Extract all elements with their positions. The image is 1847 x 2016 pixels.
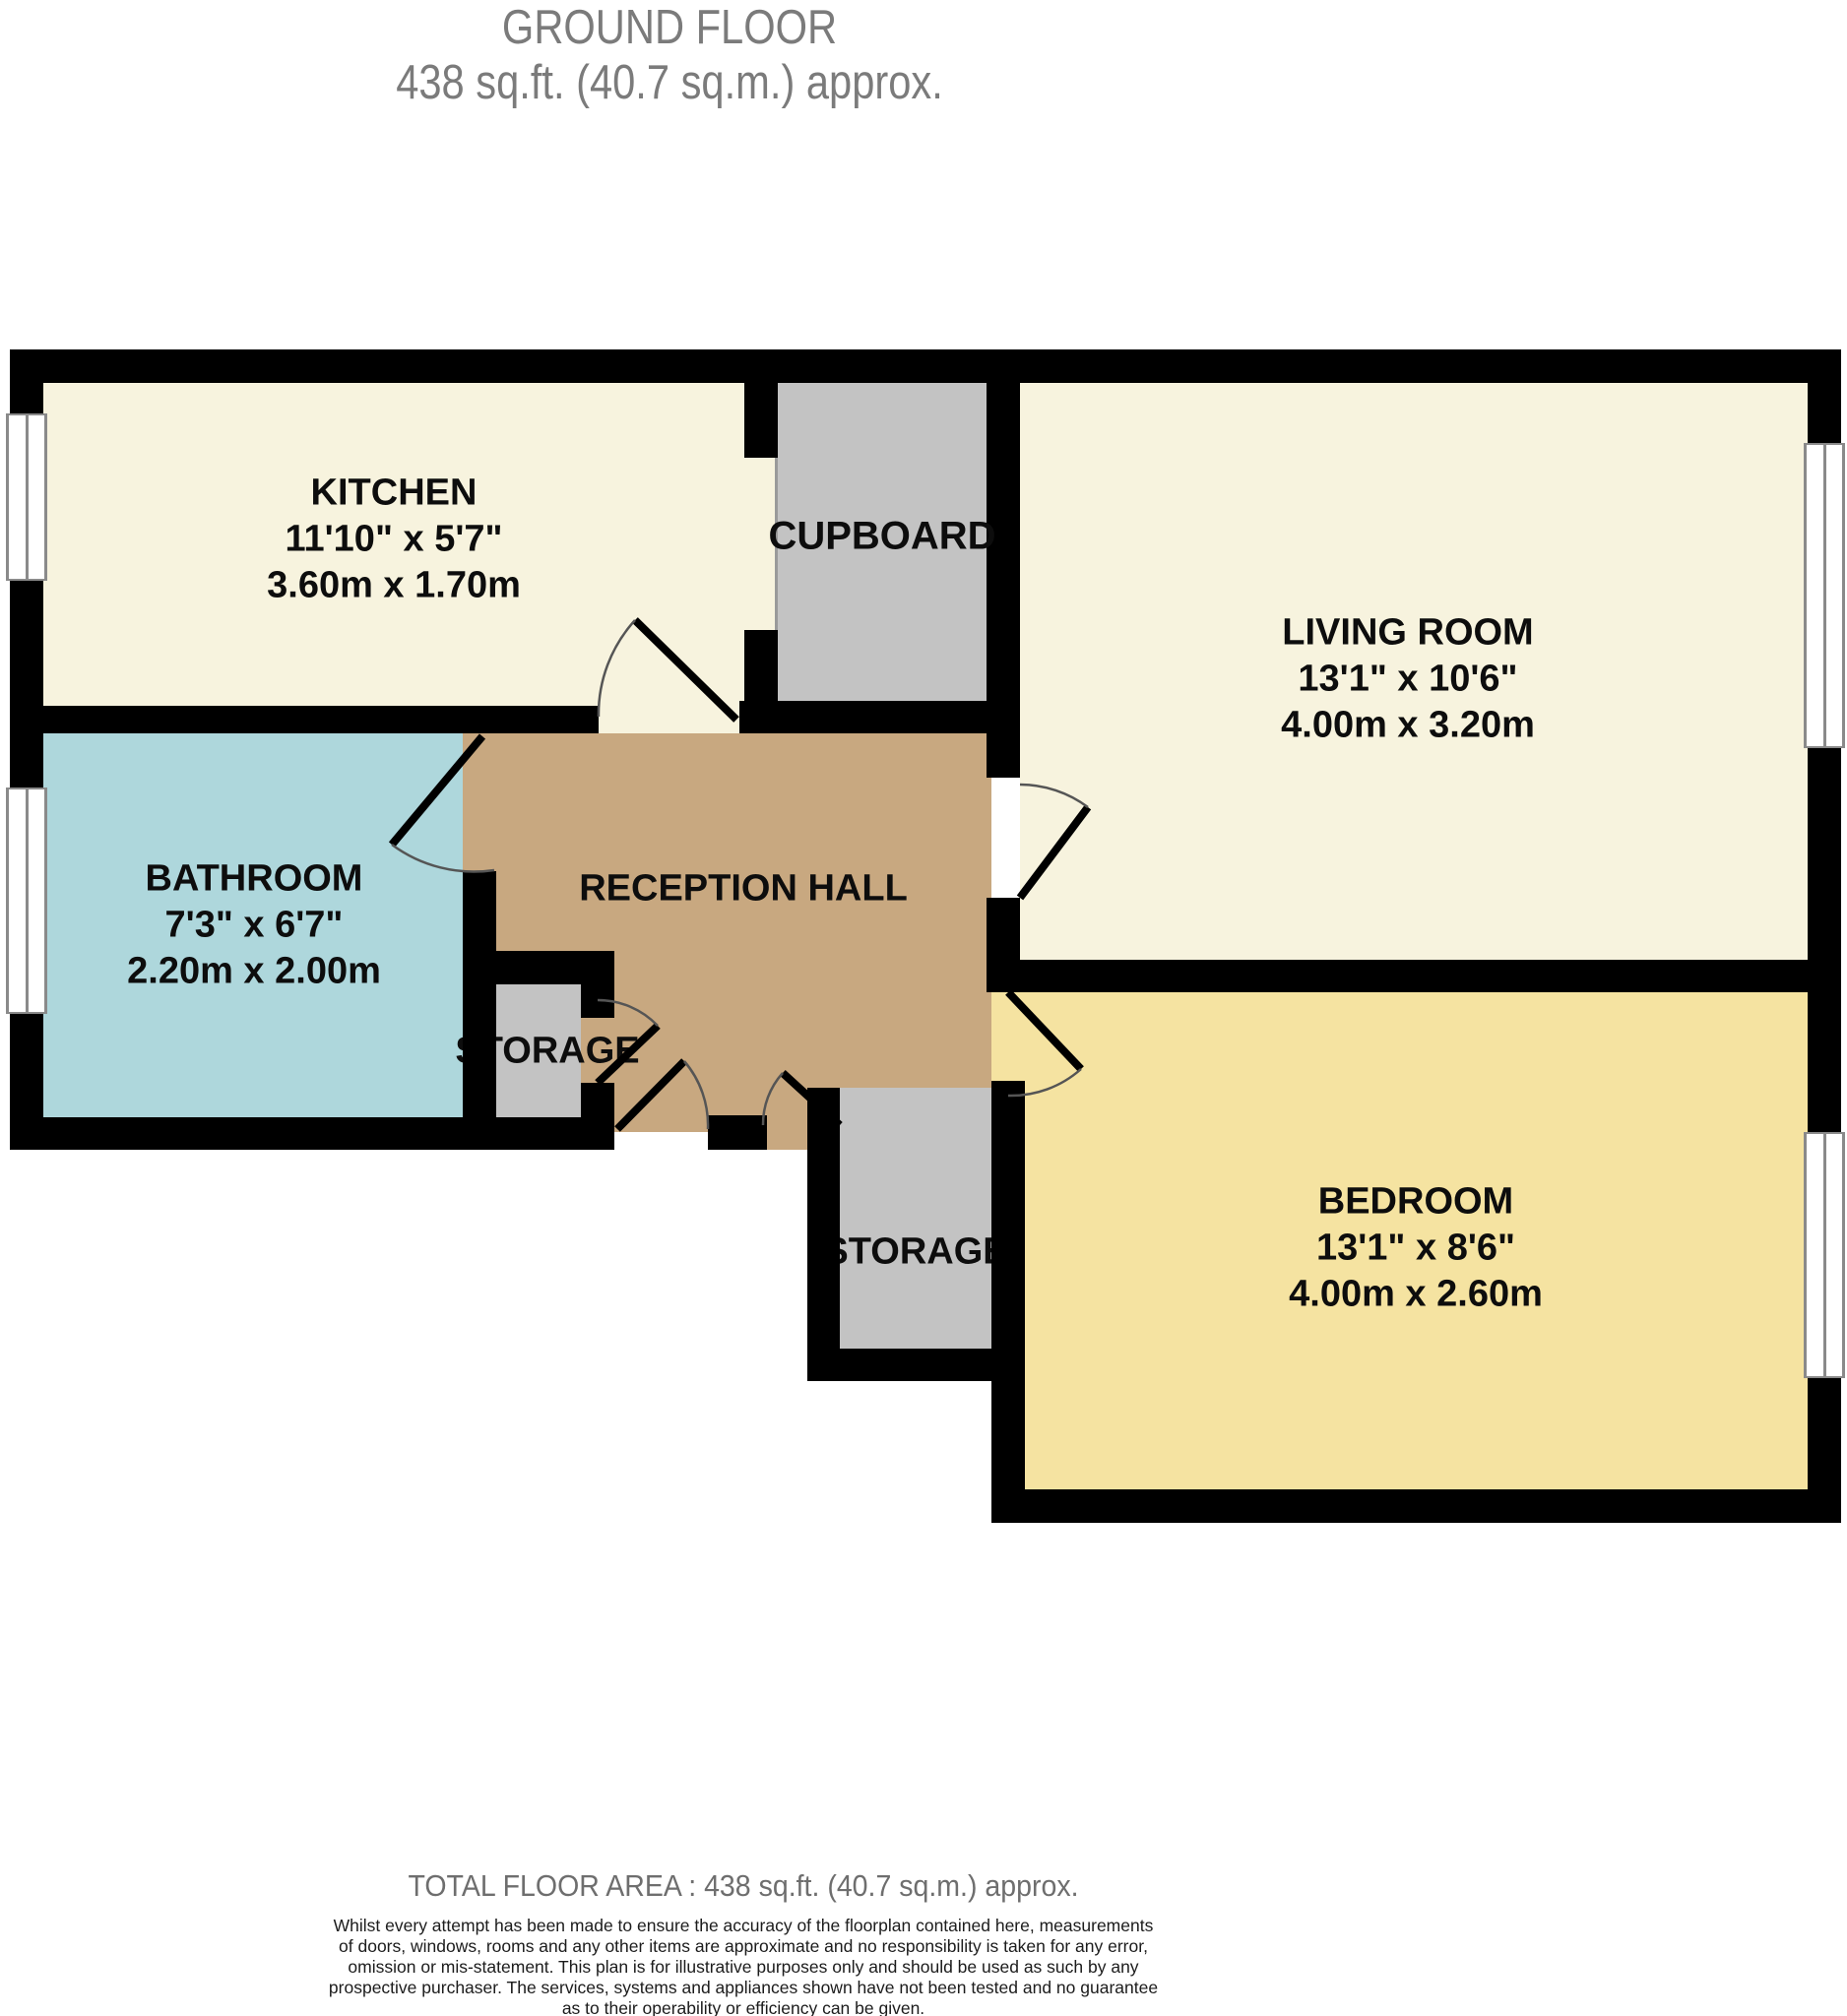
bedroom-dims-metric: 4.00m x 2.60m [1289, 1272, 1543, 1318]
bathroom-label: BATHROOM 7'3" x 6'7" 2.20m x 2.00m [127, 856, 381, 995]
front-door-threshold [614, 1132, 708, 1150]
disclaimer-line: omission or mis-statement. This plan is … [329, 1957, 1158, 1978]
wall-bedroom-left [991, 1081, 1025, 1523]
cupboard-name: CUPBOARD [768, 514, 995, 560]
bedroom-dims-imperial: 13'1" x 8'6" [1289, 1226, 1543, 1272]
wall-living-bedroom-divider [987, 960, 1841, 992]
wall-cupboard-left-stub-bottom [744, 630, 778, 706]
wall-storage-small-right-stub-top [581, 984, 614, 1018]
wall-cupboard-bottom [739, 701, 1020, 733]
floor-title: GROUND FLOOR [396, 0, 943, 55]
wall-hall-bottom-piece [708, 1115, 767, 1150]
wall-living-left-upper [987, 349, 1020, 778]
kitchen-dims-metric: 3.60m x 1.70m [267, 563, 521, 609]
floorplan-canvas: GROUND FLOOR 438 sq.ft. (40.7 sq.m.) app… [0, 0, 1847, 2016]
living-room-label: LIVING ROOM 13'1" x 10'6" 4.00m x 3.20m [1281, 610, 1535, 749]
bathroom-dims-imperial: 7'3" x 6'7" [127, 903, 381, 949]
storage-bottom-name: STORAGE [823, 1229, 1007, 1276]
living-dims-metric: 4.00m x 3.20m [1281, 703, 1535, 749]
disclaimer-line: as to their operability or efficiency ca… [329, 1998, 1158, 2016]
page-title: GROUND FLOOR 438 sq.ft. (40.7 sq.m.) app… [396, 0, 943, 110]
bedroom-door-gap [991, 992, 1025, 1081]
disclaimer-line: prospective purchaser. The services, sys… [329, 1978, 1158, 1998]
living-room-window [1804, 443, 1845, 748]
wall-bottom-left [10, 1117, 614, 1150]
wall-kitchen-bottom-left [10, 706, 599, 733]
bedroom-name: BEDROOM [1289, 1179, 1543, 1226]
kitchen-dims-imperial: 11'10" x 5'7" [267, 517, 521, 563]
bedroom-window [1804, 1132, 1845, 1378]
total-floor-area: TOTAL FLOOR AREA : 438 sq.ft. (40.7 sq.m… [408, 1868, 1078, 1904]
wall-storage-bottom-left [807, 1088, 840, 1381]
bathroom-dims-metric: 2.20m x 2.00m [127, 949, 381, 995]
wall-storage-small-right-stub-bottom [581, 1083, 614, 1117]
wall-cupboard-left-stub-top [744, 383, 778, 458]
hall-name: RECEPTION HALL [579, 866, 908, 913]
disclaimer-line: of doors, windows, rooms and any other i… [329, 1936, 1158, 1957]
disclaimer: Whilst every attempt has been made to en… [329, 1916, 1158, 2016]
kitchen-name: KITCHEN [267, 471, 521, 517]
floor-area-subtitle: 438 sq.ft. (40.7 sq.m.) approx. [396, 55, 943, 110]
reception-hall-label: RECEPTION HALL [579, 866, 908, 913]
storage-bottom-room [840, 1088, 991, 1349]
wall-storage-small-top [463, 951, 614, 984]
bathroom-name: BATHROOM [127, 856, 381, 903]
wall-top [10, 349, 1841, 383]
disclaimer-line: Whilst every attempt has been made to en… [329, 1916, 1158, 1936]
kitchen-window [6, 413, 47, 581]
storage-bottom-label: STORAGE [823, 1229, 1007, 1276]
bathroom-window [6, 787, 47, 1014]
kitchen-label: KITCHEN 11'10" x 5'7" 3.60m x 1.70m [267, 471, 521, 609]
wall-bathroom-right [463, 871, 496, 1150]
living-dims-imperial: 13'1" x 10'6" [1281, 657, 1535, 703]
wall-bedroom-bottom [991, 1489, 1841, 1523]
bathroom-door-gap [463, 733, 496, 871]
living-name: LIVING ROOM [1281, 610, 1535, 657]
cupboard-label: CUPBOARD [768, 514, 995, 560]
kitchen-door-gap [599, 706, 739, 733]
bedroom-label: BEDROOM 13'1" x 8'6" 4.00m x 2.60m [1289, 1179, 1543, 1318]
